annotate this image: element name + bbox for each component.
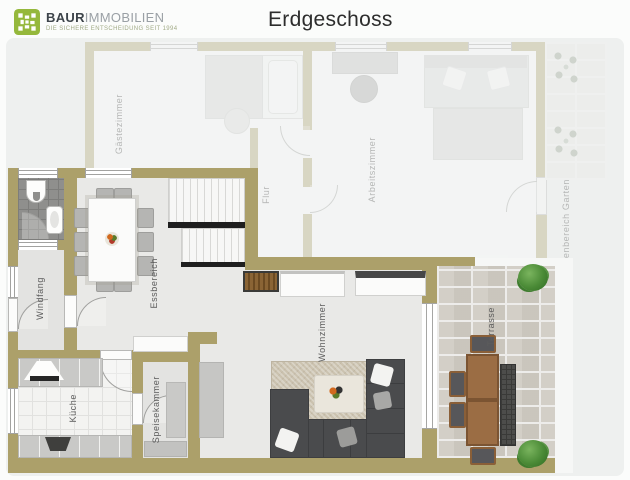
pantry-shelf	[144, 441, 187, 457]
floorplan-page: BAURIMMOBILIEN DIE SICHERE ENTSCHEIDUNG …	[0, 0, 630, 480]
cupboard	[199, 362, 224, 438]
room-label-arbeitszimmer: Arbeitszimmer	[367, 137, 377, 202]
bush	[518, 440, 548, 467]
terrace-chair	[449, 402, 466, 428]
room-label-flur: Flur	[261, 186, 271, 204]
room-label-wohnzimmer: Wohnzimmer	[317, 303, 327, 362]
wall	[245, 168, 258, 270]
sideboard	[280, 271, 345, 297]
table-decor	[328, 385, 344, 400]
window	[18, 240, 58, 250]
pantry-shelf	[166, 382, 186, 438]
window	[8, 266, 18, 298]
desk	[332, 52, 398, 74]
bed-pillow	[268, 60, 298, 114]
desk-chair	[350, 75, 378, 103]
plant-cluster	[549, 121, 583, 171]
pantry-door	[132, 393, 143, 425]
cooktop	[30, 376, 59, 381]
sideboard	[133, 336, 188, 352]
kitchen-door	[100, 350, 132, 360]
faded-rug	[433, 108, 523, 160]
entrance-door	[8, 298, 18, 332]
stairs-lower-flight	[181, 228, 245, 264]
room-label-gaestezimmer: Gästezimmer	[114, 94, 124, 154]
room-label-speisekammer: Speisekammer	[151, 376, 161, 443]
room-label-windfang: Windfang	[35, 277, 45, 320]
dining-chair	[137, 208, 154, 228]
terrace-window-door	[422, 303, 437, 429]
radiator	[243, 271, 279, 292]
terrace-edge	[555, 258, 573, 473]
terrace-table	[466, 354, 499, 446]
room-label-terrasse: Terrasse	[486, 307, 496, 346]
room-label-essbereich: Essbereich	[149, 258, 159, 309]
kitchen-counter	[18, 435, 132, 458]
terrace-chair	[449, 371, 466, 397]
tv-lowboard	[355, 271, 426, 296]
terrace-bench	[500, 364, 516, 446]
windfang-door	[64, 295, 77, 328]
window	[18, 168, 58, 178]
sofa-pillow	[373, 391, 393, 411]
window	[85, 168, 132, 178]
room-label-kueche: Küche	[68, 394, 78, 423]
stool	[224, 108, 250, 134]
dining-chair	[137, 232, 154, 252]
stairs-upper-flight	[168, 178, 245, 224]
window	[8, 388, 18, 434]
fruit-bowl	[105, 232, 119, 246]
terrace-chair	[470, 447, 496, 465]
stairs-divider	[181, 262, 245, 267]
plant-cluster	[549, 47, 583, 91]
bush	[518, 264, 548, 291]
